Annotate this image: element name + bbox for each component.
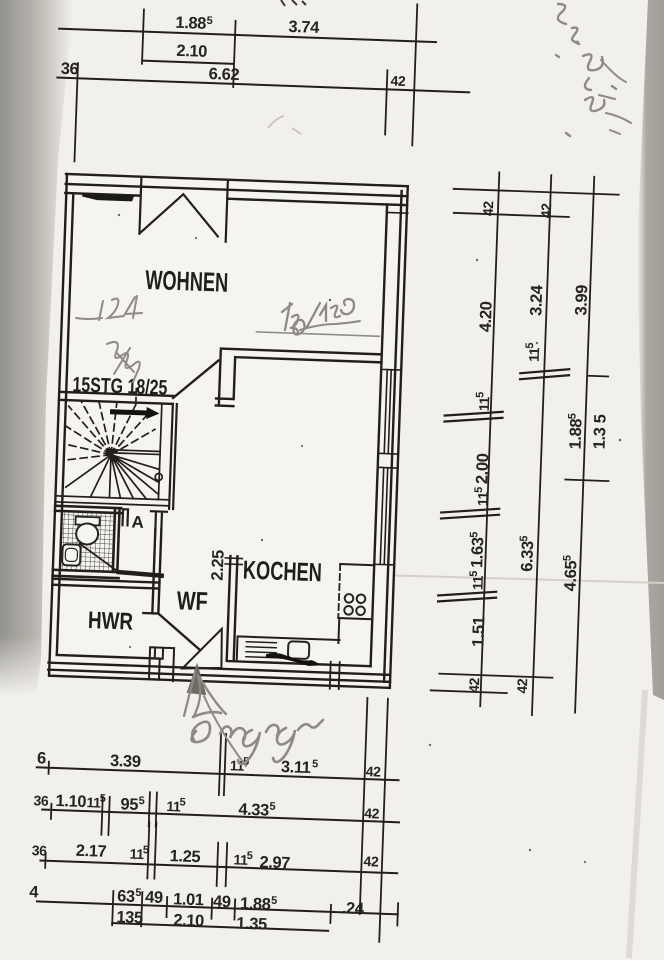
svg-text:WF: WF	[176, 585, 208, 616]
svg-text:3.39: 3.39	[110, 752, 141, 771]
svg-text:WOHNEN: WOHNEN	[145, 265, 229, 298]
svg-text:.24: .24	[342, 899, 366, 918]
svg-text:49: 49	[145, 888, 163, 907]
svg-text:5: 5	[474, 392, 486, 399]
svg-text:2.10: 2.10	[173, 911, 204, 930]
svg-text:3.11: 3.11	[281, 758, 311, 777]
svg-text:95: 95	[120, 795, 138, 814]
svg-text:5: 5	[567, 413, 579, 420]
svg-text:4.20: 4.20	[477, 301, 496, 332]
svg-text:36: 36	[33, 792, 49, 809]
svg-text:42: 42	[363, 853, 379, 870]
svg-text:1.88: 1.88	[566, 418, 585, 449]
svg-text:5: 5	[468, 570, 480, 577]
svg-text:42: 42	[514, 678, 531, 694]
svg-text:5: 5	[99, 793, 106, 805]
svg-text:5: 5	[138, 795, 145, 807]
svg-text:HWR: HWR	[88, 607, 134, 636]
svg-text:3.24: 3.24	[527, 284, 546, 316]
svg-text:KOCHEN: KOCHEN	[242, 555, 322, 588]
svg-text:2.10: 2.10	[176, 42, 207, 61]
svg-text:49: 49	[213, 893, 231, 912]
svg-text:2.25: 2.25	[209, 550, 228, 581]
svg-text:5: 5	[561, 555, 573, 562]
svg-text:5: 5	[135, 887, 142, 899]
svg-text:4.33: 4.33	[238, 801, 269, 820]
svg-text:6.62: 6.62	[208, 65, 239, 84]
svg-text:1.35: 1.35	[236, 915, 267, 934]
svg-text:2.97: 2.97	[259, 853, 290, 872]
svg-text:4.65: 4.65	[561, 560, 580, 591]
svg-text:5: 5	[312, 758, 319, 770]
svg-text:5: 5	[524, 342, 536, 349]
svg-text:A: A	[131, 513, 144, 532]
svg-text:5: 5	[468, 531, 480, 538]
svg-text:1.51: 1.51	[469, 616, 488, 647]
svg-text:36: 36	[32, 842, 48, 859]
svg-text:6.33: 6.33	[518, 541, 537, 572]
svg-text:2.17: 2.17	[75, 842, 106, 861]
svg-text:1.88: 1.88	[240, 895, 271, 914]
svg-text:135: 135	[116, 908, 143, 927]
svg-text:1.01: 1.01	[173, 890, 204, 909]
svg-text:5: 5	[473, 487, 485, 494]
svg-text:1.63: 1.63	[468, 537, 487, 568]
svg-text:5: 5	[269, 801, 276, 813]
svg-text:15STG 18/25: 15STG 18/25	[72, 373, 168, 399]
svg-text:63: 63	[117, 887, 135, 906]
svg-text:1.88: 1.88	[175, 14, 206, 33]
svg-text:42: 42	[366, 763, 382, 780]
svg-text:42: 42	[538, 202, 555, 218]
svg-text:1.3 5: 1.3 5	[591, 414, 610, 450]
svg-text:42: 42	[480, 200, 497, 216]
svg-text:5: 5	[143, 844, 150, 856]
svg-text:1.10: 1.10	[55, 792, 86, 811]
svg-text:5: 5	[518, 535, 530, 542]
svg-text:6: 6	[37, 749, 47, 767]
svg-text:36: 36	[60, 60, 78, 79]
svg-text:1.25: 1.25	[169, 847, 200, 866]
svg-text:3.74: 3.74	[288, 18, 320, 37]
svg-text:5: 5	[271, 895, 278, 907]
svg-text:5: 5	[179, 796, 186, 808]
svg-text:2.00: 2.00	[473, 453, 492, 484]
svg-text:42: 42	[390, 73, 406, 90]
svg-text:42: 42	[364, 805, 380, 822]
svg-text:3.99: 3.99	[572, 284, 591, 315]
svg-text:42: 42	[466, 677, 483, 693]
svg-text:5: 5	[206, 15, 213, 27]
svg-text:5: 5	[247, 850, 254, 862]
